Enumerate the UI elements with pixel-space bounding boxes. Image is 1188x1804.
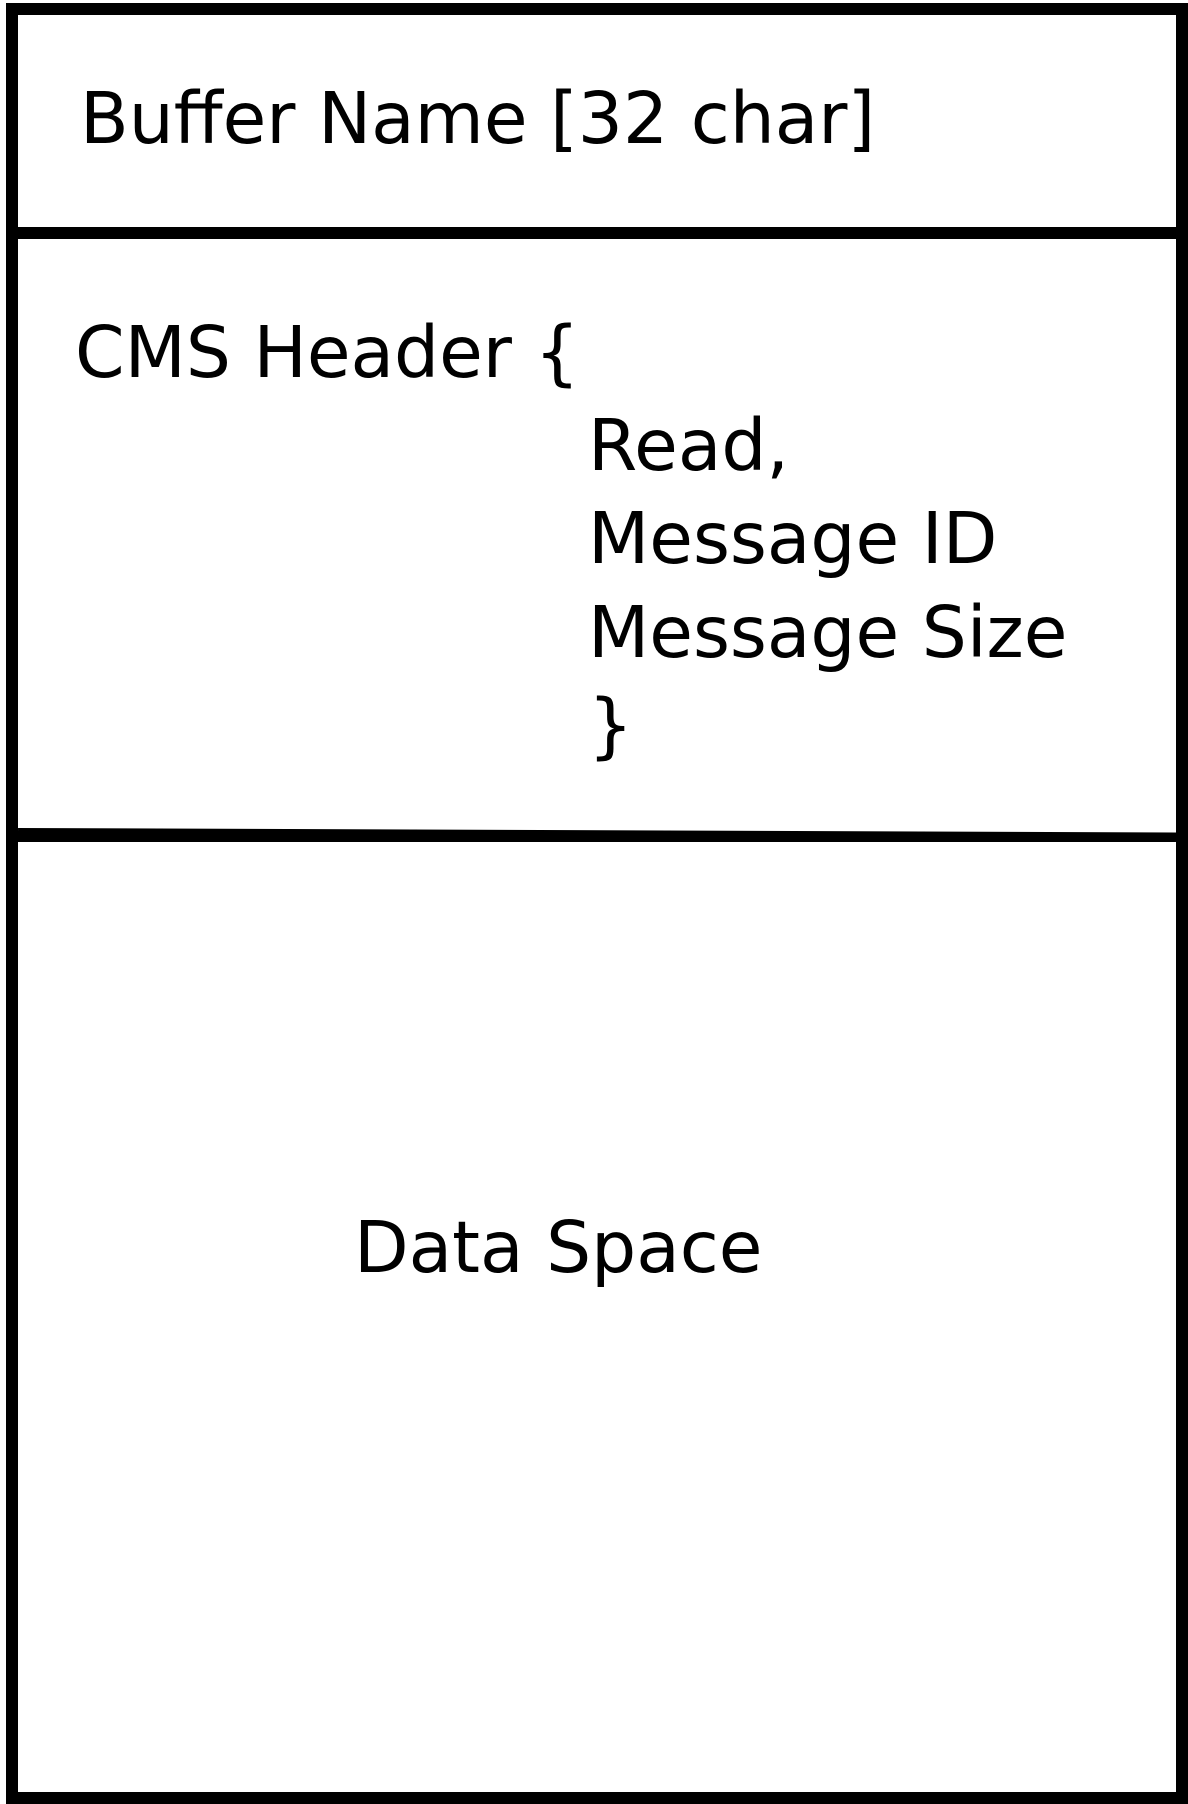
cms-header-section: CMS Header { Read, Message ID Message Si…: [18, 239, 1176, 828]
cms-header-field-message-size: Message Size: [588, 597, 1068, 668]
buffer-name-section: Buffer Name [32 char]: [18, 15, 1176, 227]
cms-header-field-read: Read,: [588, 410, 789, 481]
data-space-label: Data Space: [354, 1212, 762, 1283]
cms-header-open-label: CMS Header {: [75, 317, 580, 388]
buffer-layout-diagram: Buffer Name [32 char] CMS Header { Read,…: [0, 0, 1188, 1804]
cms-header-close-brace: }: [588, 690, 633, 761]
buffer-outline-frame: Buffer Name [32 char] CMS Header { Read,…: [6, 3, 1188, 1804]
cms-header-field-message-id: Message ID: [588, 503, 997, 574]
data-space-section: Data Space: [18, 842, 1176, 1792]
section-divider-top: [18, 227, 1176, 239]
buffer-name-label: Buffer Name [32 char]: [80, 83, 875, 154]
